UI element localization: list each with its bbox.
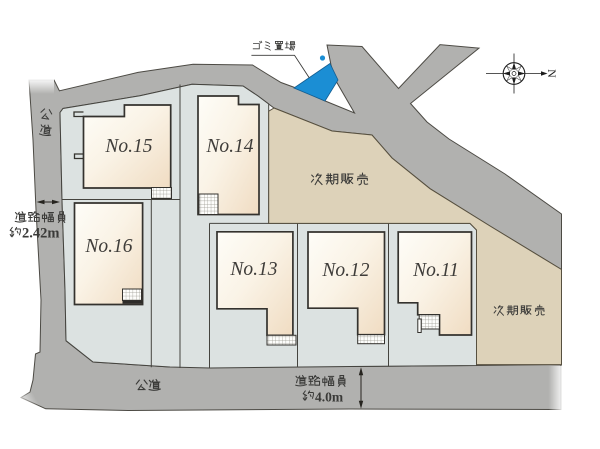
svg-text:N: N	[545, 69, 559, 78]
svg-text:2.42m: 2.42m	[22, 226, 59, 242]
svg-text:No.14: No.14	[205, 136, 253, 157]
svg-text:4.0m: 4.0m	[315, 390, 344, 405]
svg-text:No.16: No.16	[84, 236, 132, 257]
svg-text:No.11: No.11	[412, 260, 459, 281]
svg-text:No.15: No.15	[104, 136, 152, 157]
svg-text:No.13: No.13	[229, 259, 277, 280]
svg-text:No.12: No.12	[321, 260, 369, 281]
